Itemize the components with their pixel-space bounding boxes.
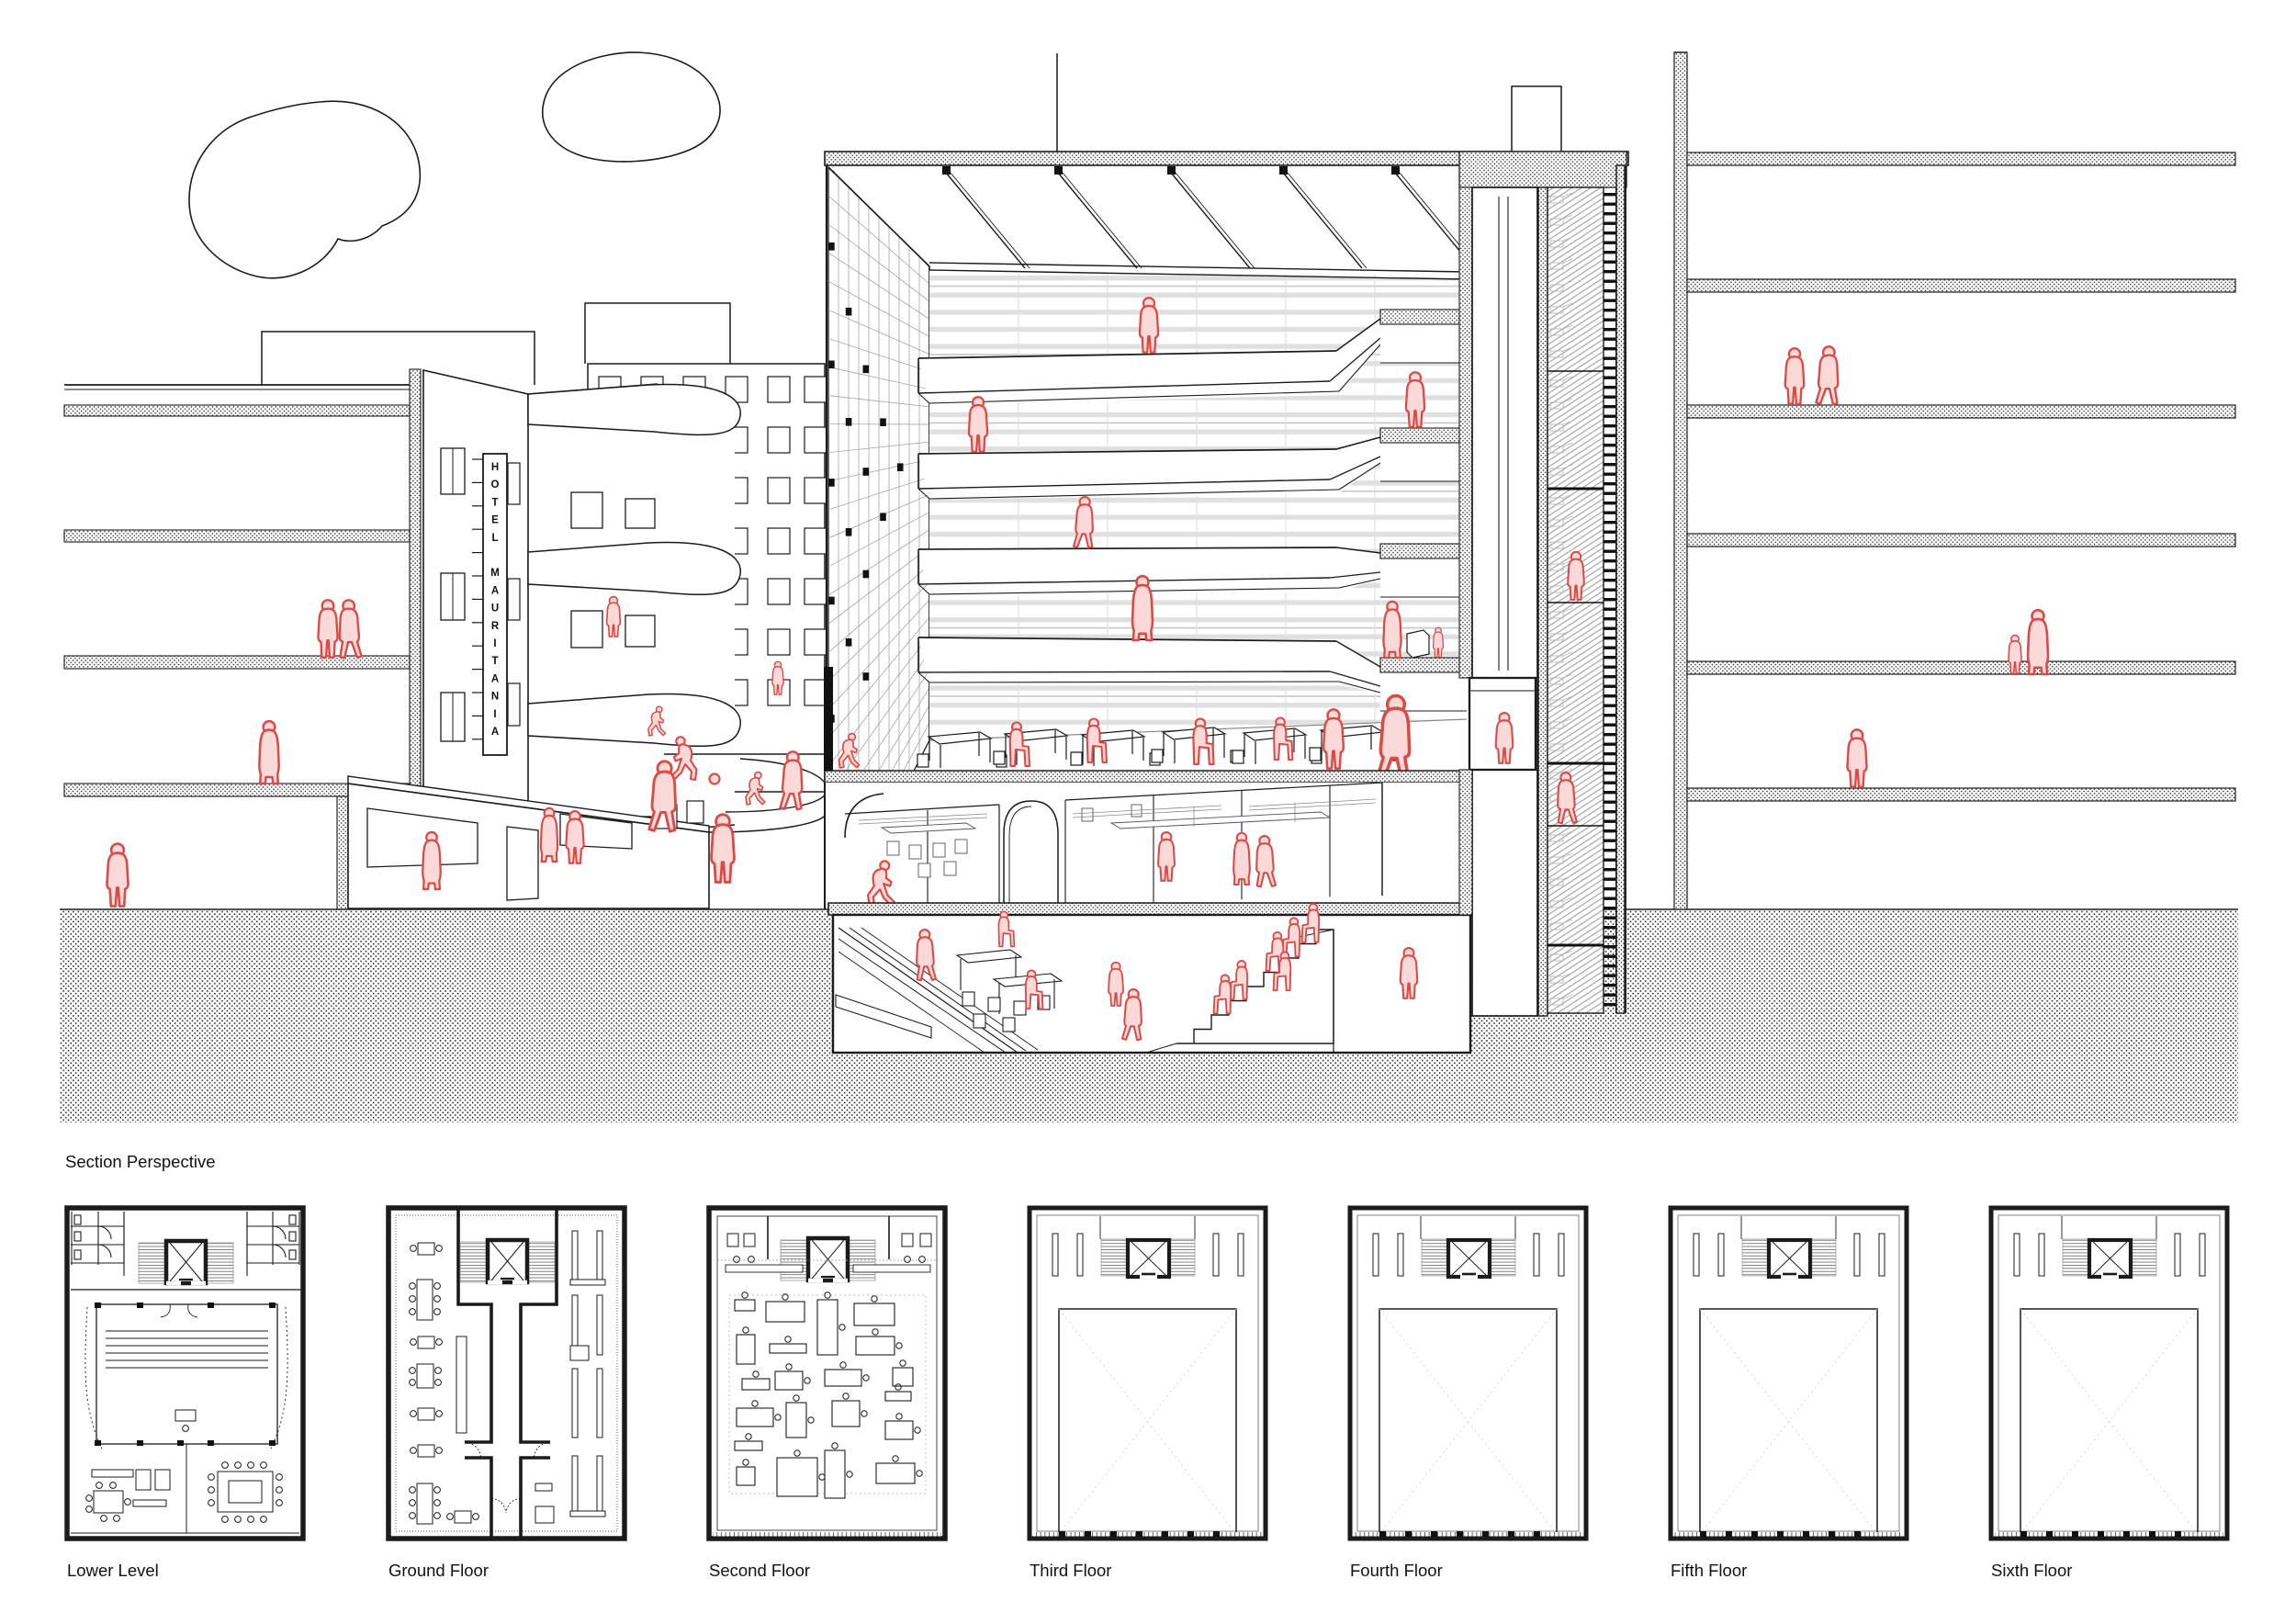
- svg-text:Section Perspective: Section Perspective: [65, 1152, 216, 1171]
- svg-text:Sixth Floor: Sixth Floor: [1991, 1561, 2072, 1580]
- svg-text:Fifth Floor: Fifth Floor: [1671, 1561, 1747, 1580]
- svg-text:R: R: [491, 621, 500, 632]
- svg-text:U: U: [491, 603, 499, 615]
- svg-text:Third Floor: Third Floor: [1030, 1561, 1111, 1580]
- svg-text:Fourth Floor: Fourth Floor: [1350, 1561, 1443, 1580]
- svg-text:A: A: [491, 585, 499, 596]
- svg-text:Lower Level: Lower Level: [67, 1561, 159, 1580]
- svg-text:T: T: [491, 656, 498, 667]
- svg-text:Ground Floor: Ground Floor: [388, 1561, 489, 1580]
- svg-text:L: L: [491, 533, 498, 544]
- svg-text:O: O: [491, 479, 500, 491]
- svg-text:A: A: [491, 673, 499, 684]
- svg-text:M: M: [490, 568, 500, 579]
- svg-text:I: I: [493, 709, 496, 720]
- svg-text:Second Floor: Second Floor: [709, 1561, 810, 1580]
- svg-text:I: I: [493, 638, 496, 649]
- svg-text:N: N: [491, 692, 499, 703]
- svg-text:A: A: [491, 727, 499, 738]
- svg-text:T: T: [491, 497, 498, 508]
- svg-text:E: E: [491, 515, 499, 526]
- svg-text:H: H: [491, 462, 499, 473]
